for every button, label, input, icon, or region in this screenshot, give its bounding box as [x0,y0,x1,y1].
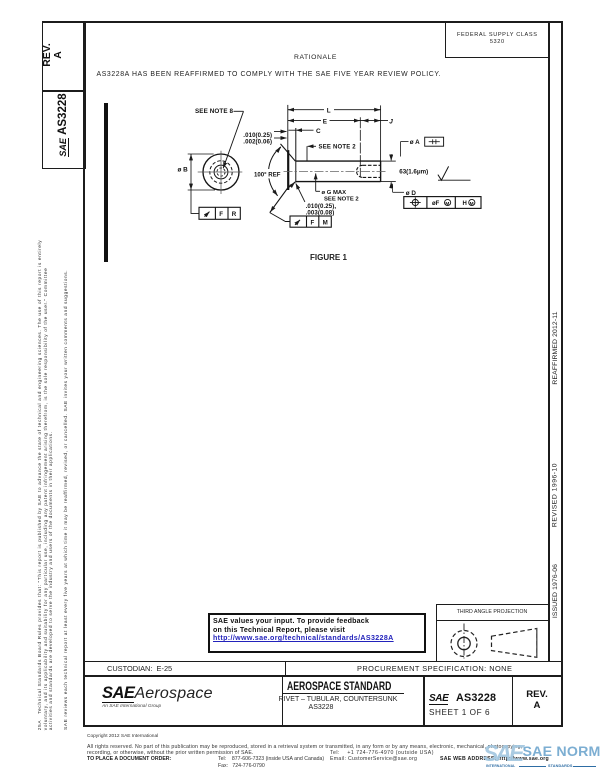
svg-text:ø G MAX: ø G MAX [322,190,347,196]
svg-text:SEE NOTE 2: SEE NOTE 2 [324,196,359,202]
svg-text:M: M [470,201,474,207]
svg-text:C: C [316,128,321,135]
svg-text:SEE NOTE 8: SEE NOTE 8 [195,108,233,115]
svg-text:M: M [445,201,449,207]
svg-text:E: E [323,118,328,125]
svg-text:H: H [463,201,467,207]
svg-text:J: J [389,118,393,125]
svg-text:R: R [232,211,237,218]
svg-text:.002(0.06): .002(0.06) [243,138,272,145]
svg-text:M: M [323,219,328,226]
svg-text:63(1.6μm): 63(1.6μm) [399,168,428,175]
svg-text:L: L [327,107,331,114]
svg-text:øF: øF [432,201,440,207]
svg-text:ø B: ø B [178,167,189,174]
svg-text:100° REF: 100° REF [254,172,281,179]
svg-text:ø D: ø D [406,190,417,197]
svg-text:F: F [311,219,315,226]
svg-text:SEE NOTE 2: SEE NOTE 2 [319,145,357,151]
svg-text:ø A: ø A [410,139,420,146]
svg-text:F: F [219,211,223,218]
svg-text:.003(0.08): .003(0.08) [306,210,335,217]
